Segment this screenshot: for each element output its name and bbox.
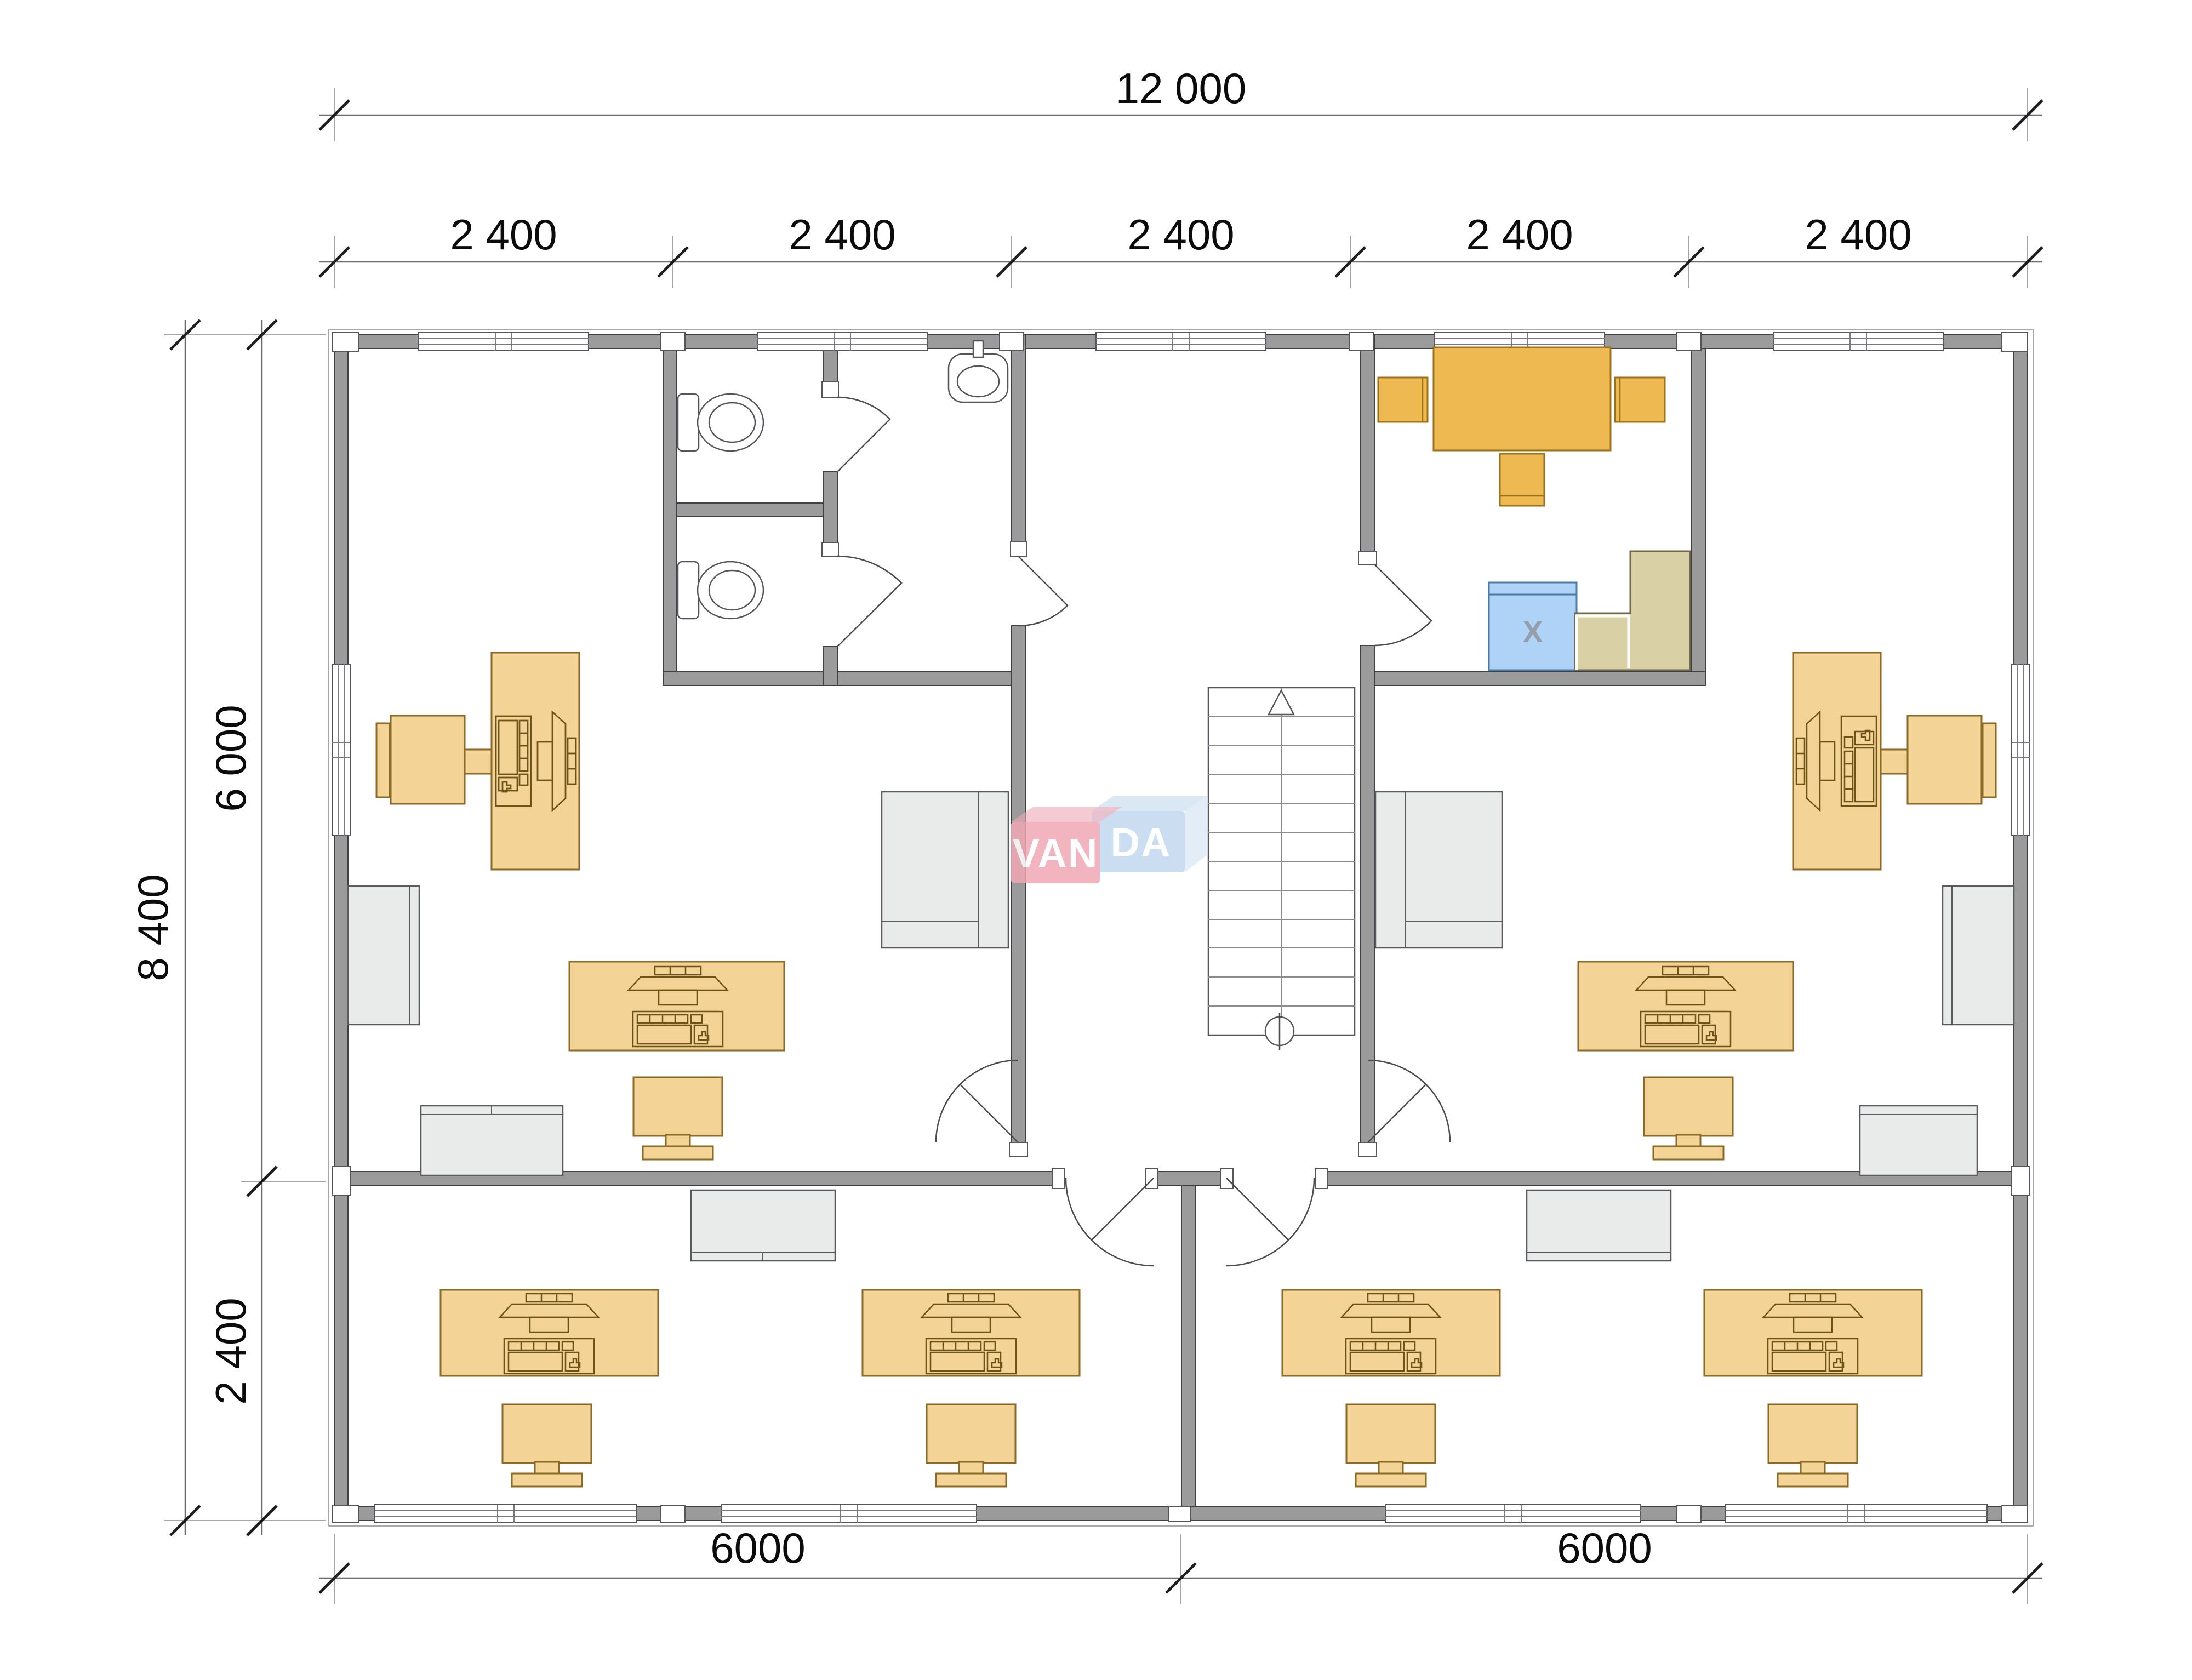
office-chair: [927, 1404, 1015, 1487]
dim-bay-2: 2 400: [789, 210, 895, 259]
window-top-2: [757, 333, 927, 351]
toilet-2: [678, 562, 763, 619]
window-bottom-4: [1726, 1505, 1987, 1523]
kitchen-counter: [1575, 551, 1690, 670]
logo-text-van: VAN: [1013, 831, 1099, 876]
wall-bottom-rooms-divider: [1181, 1185, 1195, 1507]
wall-stall-divider: [677, 503, 823, 517]
conference-chair: [1378, 378, 1428, 422]
office-chair: [1346, 1404, 1435, 1487]
wall-hall-left-lower: [1012, 626, 1025, 1142]
conference-chair: [1615, 378, 1665, 422]
corner-post: [332, 333, 358, 351]
office-chair: [1768, 1404, 1857, 1487]
door-jamb: [1145, 1168, 1158, 1188]
dim-left-total: 8 400: [129, 874, 177, 981]
wall-bathroom-bottom: [663, 672, 1025, 685]
wall-stall: [823, 647, 837, 685]
column-post: [1349, 333, 1373, 351]
wall-hall-right-upper: [1361, 335, 1374, 551]
column-post: [661, 333, 685, 351]
staircase: [1208, 688, 1355, 1050]
window-top-3: [1096, 333, 1266, 351]
door-wc-stall-2: [837, 556, 901, 647]
column-post: [1000, 333, 1024, 351]
door-breakroom: [1374, 564, 1431, 645]
wall-mid-center: [1158, 1172, 1222, 1185]
window-left: [332, 664, 350, 836]
office-chair: [503, 1404, 591, 1487]
dim-bottom-right: 6000: [1557, 1524, 1652, 1572]
office-floor-plan: 12 000 2 400 2 400 2 400 2 400 2 400 8 4…: [0, 0, 2192, 1680]
vanda-logo: VAN DA: [1011, 796, 1207, 883]
desk: [1282, 1290, 1500, 1376]
side-table: [691, 1190, 835, 1261]
corner-post: [2001, 1506, 2028, 1522]
wall-hall-right-lower: [1361, 645, 1374, 1142]
office-chair: [633, 1077, 722, 1159]
wall-stall: [823, 472, 837, 542]
desk: [441, 1290, 658, 1376]
door-jamb: [1052, 1168, 1065, 1188]
break-room: X: [1378, 347, 1690, 670]
appliance-dishwasher: X: [1489, 582, 1577, 670]
sink: [949, 341, 1008, 402]
dim-bay-4: 2 400: [1466, 210, 1573, 259]
cabinet: [348, 886, 419, 1025]
logo-text-da: DA: [1111, 820, 1172, 865]
door-office-left: [936, 1060, 1018, 1142]
sofa: [882, 792, 1008, 948]
column-post: [1677, 333, 1701, 351]
wall-breakroom-right: [1692, 348, 1705, 672]
dim-bay-3: 2 400: [1127, 210, 1234, 259]
wall-right: [2014, 348, 2028, 1507]
door-jamb: [822, 542, 838, 556]
door-washroom: [1018, 556, 1068, 626]
floor-plan-page: 12 000 2 400 2 400 2 400 2 400 2 400 8 4…: [0, 0, 2192, 1680]
column-post: [1169, 1506, 1191, 1522]
corner-post: [2001, 333, 2028, 351]
door-room-bottom-right: [1226, 1178, 1314, 1266]
conference-table: [1434, 347, 1611, 450]
printer-table: [421, 1106, 563, 1175]
column-post: [1677, 1506, 1701, 1522]
office-chair: [1644, 1077, 1733, 1159]
door-room-bottom-left: [1066, 1178, 1154, 1266]
junction-post: [2012, 1167, 2030, 1195]
dim-left-lower: 2 400: [207, 1298, 255, 1404]
door-office-right: [1368, 1060, 1450, 1142]
cabinet: [1943, 886, 2014, 1025]
desk: [863, 1290, 1080, 1376]
wall-bathroom-left: [663, 348, 677, 672]
desk-chair: [376, 716, 492, 804]
printer-table: [1860, 1106, 1977, 1175]
dim-bay-1: 2 400: [450, 210, 557, 259]
wall-cap: [1358, 1142, 1377, 1156]
bathroom: [678, 341, 1008, 619]
door-jamb: [1011, 541, 1026, 557]
window-bottom-1: [375, 1505, 636, 1523]
wall-stall: [823, 348, 837, 381]
dim-bottom-left: 6000: [710, 1524, 806, 1572]
window-right: [2012, 664, 2030, 836]
door-jamb: [1358, 551, 1377, 564]
door-jamb: [822, 381, 838, 397]
side-table: [1527, 1190, 1671, 1261]
dim-top-total: 12 000: [1116, 64, 1247, 112]
door-jamb: [1315, 1168, 1328, 1188]
window-top-1: [419, 333, 589, 351]
wall-cap: [1009, 1142, 1027, 1156]
toilet-1: [678, 394, 763, 451]
sofa: [1375, 792, 1502, 948]
wall-hall-left-upper: [1012, 335, 1025, 541]
dim-bay-5: 2 400: [1805, 210, 1911, 259]
desk-chair: [1881, 716, 1996, 804]
desk: [1704, 1290, 1922, 1376]
column-post: [661, 1506, 685, 1522]
wall-left: [334, 348, 348, 1507]
wall-breakroom-bottom: [1374, 672, 1705, 685]
junction-post: [332, 1167, 350, 1195]
window-top-5: [1773, 333, 1943, 351]
corner-post: [332, 1506, 358, 1522]
window-bottom-2: [721, 1505, 977, 1523]
door-wc-stall-1: [837, 397, 890, 472]
conference-chair: [1500, 454, 1544, 506]
dim-left-upper: 6 000: [207, 705, 255, 812]
window-bottom-3: [1385, 1505, 1641, 1523]
appliance-x-label: X: [1522, 614, 1543, 649]
